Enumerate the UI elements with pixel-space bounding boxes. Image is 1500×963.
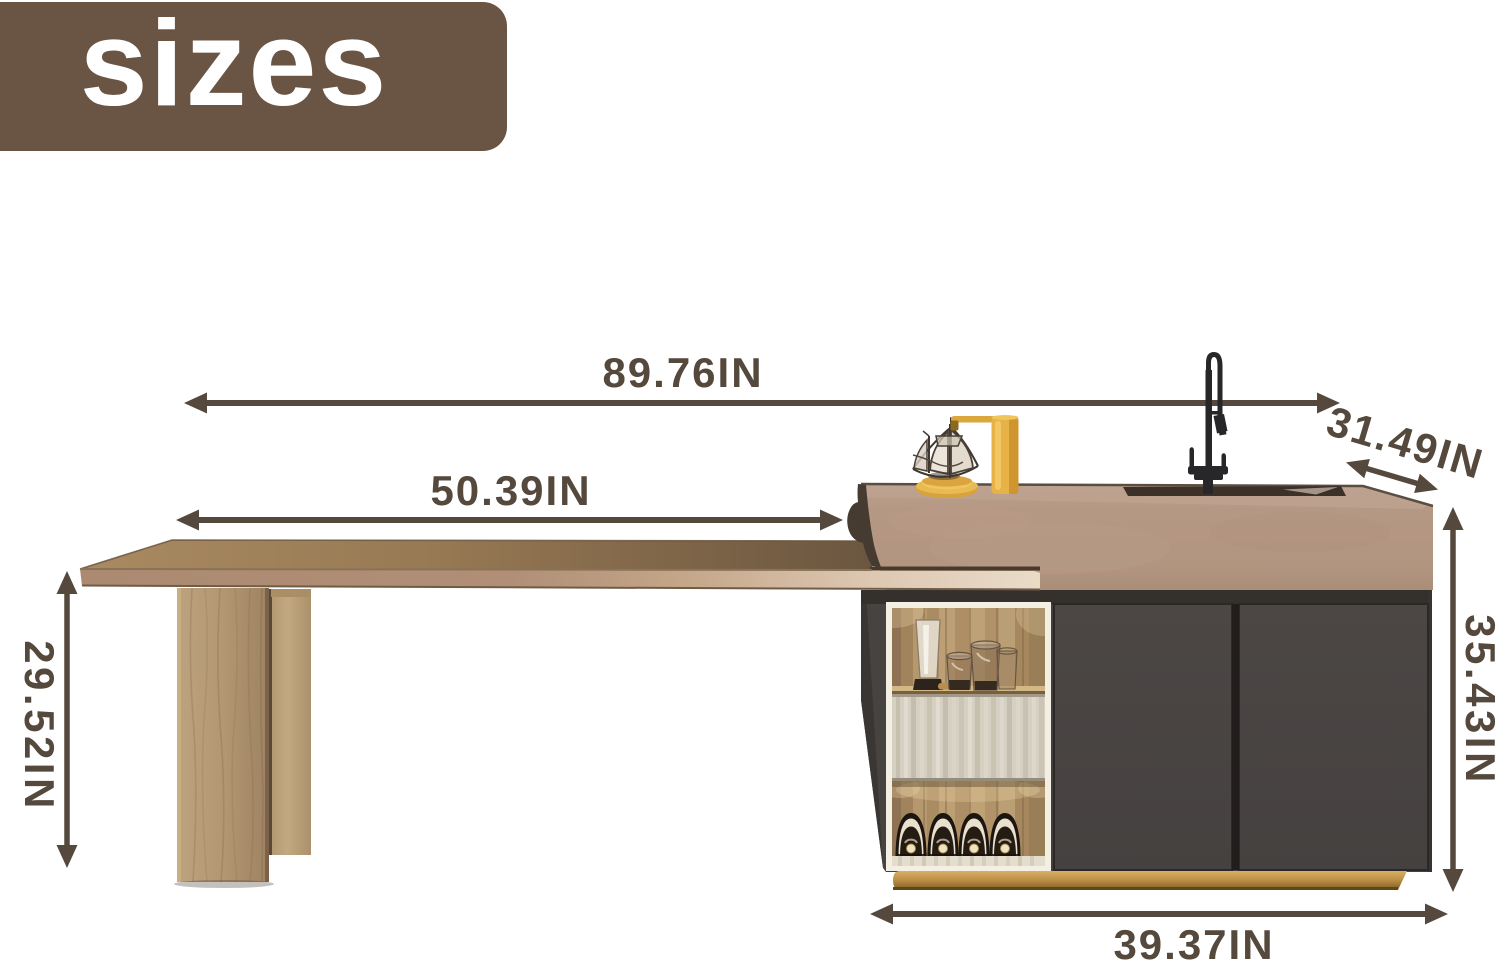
svg-text:29.52IN: 29.52IN	[16, 640, 63, 812]
svg-text:35.43IN: 35.43IN	[1457, 614, 1500, 786]
svg-text:89.76IN: 89.76IN	[602, 349, 763, 396]
svg-text:50.39IN: 50.39IN	[430, 467, 591, 514]
svg-text:sizes: sizes	[80, 0, 388, 131]
svg-text:39.37IN: 39.37IN	[1113, 921, 1274, 963]
